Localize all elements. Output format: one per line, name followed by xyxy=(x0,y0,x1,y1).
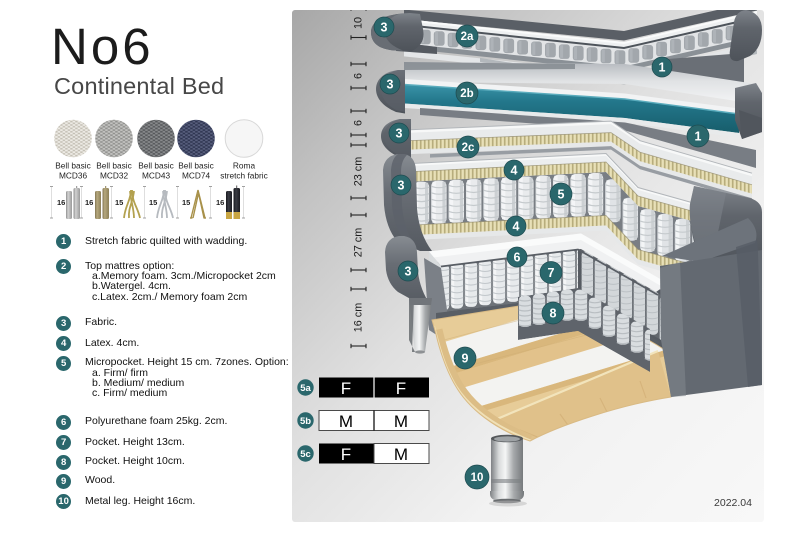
svg-text:6: 6 xyxy=(514,251,521,265)
svg-text:F: F xyxy=(341,445,351,464)
svg-text:2022.04: 2022.04 xyxy=(714,497,752,509)
svg-text:3: 3 xyxy=(405,265,412,279)
svg-text:2c: 2c xyxy=(462,142,475,154)
svg-text:Bell basic: Bell basic xyxy=(96,161,132,171)
svg-text:6: 6 xyxy=(353,73,365,79)
svg-text:MCD74: MCD74 xyxy=(182,171,211,181)
svg-text:5b: 5b xyxy=(300,416,311,427)
svg-text:3: 3 xyxy=(387,78,394,92)
svg-text:F: F xyxy=(396,379,406,398)
svg-text:4: 4 xyxy=(513,220,520,234)
svg-text:MCD36: MCD36 xyxy=(59,171,88,181)
svg-text:Roma: Roma xyxy=(233,161,256,171)
svg-text:23 cm: 23 cm xyxy=(353,157,365,186)
svg-text:Bell basic: Bell basic xyxy=(178,161,214,171)
svg-text:6: 6 xyxy=(353,120,365,126)
svg-text:16: 16 xyxy=(57,198,65,207)
svg-text:Bell basic: Bell basic xyxy=(138,161,174,171)
svg-text:3: 3 xyxy=(396,127,403,141)
svg-text:MCD43: MCD43 xyxy=(142,171,171,181)
svg-text:15: 15 xyxy=(182,198,190,207)
svg-text:M: M xyxy=(394,445,408,464)
svg-text:16: 16 xyxy=(85,198,93,207)
svg-text:M: M xyxy=(394,412,408,431)
svg-text:Bell basic: Bell basic xyxy=(55,161,91,171)
svg-text:16 cm: 16 cm xyxy=(353,303,365,332)
svg-text:5a: 5a xyxy=(300,383,311,394)
svg-text:5: 5 xyxy=(558,188,565,202)
svg-text:9: 9 xyxy=(462,352,469,366)
svg-text:5c: 5c xyxy=(300,449,311,460)
svg-text:3: 3 xyxy=(398,179,405,193)
svg-text:stretch fabric: stretch fabric xyxy=(220,171,268,181)
svg-text:27 cm: 27 cm xyxy=(353,228,365,257)
svg-text:2a: 2a xyxy=(461,31,474,43)
svg-text:7: 7 xyxy=(548,266,555,280)
svg-text:16: 16 xyxy=(216,198,224,207)
svg-text:15: 15 xyxy=(149,198,157,207)
svg-text:4: 4 xyxy=(511,164,518,178)
svg-text:MCD32: MCD32 xyxy=(100,171,129,181)
svg-text:8: 8 xyxy=(550,307,557,321)
svg-text:F: F xyxy=(341,379,351,398)
svg-text:2b: 2b xyxy=(460,88,473,100)
svg-text:15: 15 xyxy=(115,198,123,207)
svg-text:10: 10 xyxy=(471,472,484,484)
svg-text:M: M xyxy=(339,412,353,431)
svg-text:1: 1 xyxy=(659,61,666,75)
svg-text:3: 3 xyxy=(381,21,388,35)
svg-text:1: 1 xyxy=(695,130,702,144)
svg-text:10: 10 xyxy=(353,17,365,29)
